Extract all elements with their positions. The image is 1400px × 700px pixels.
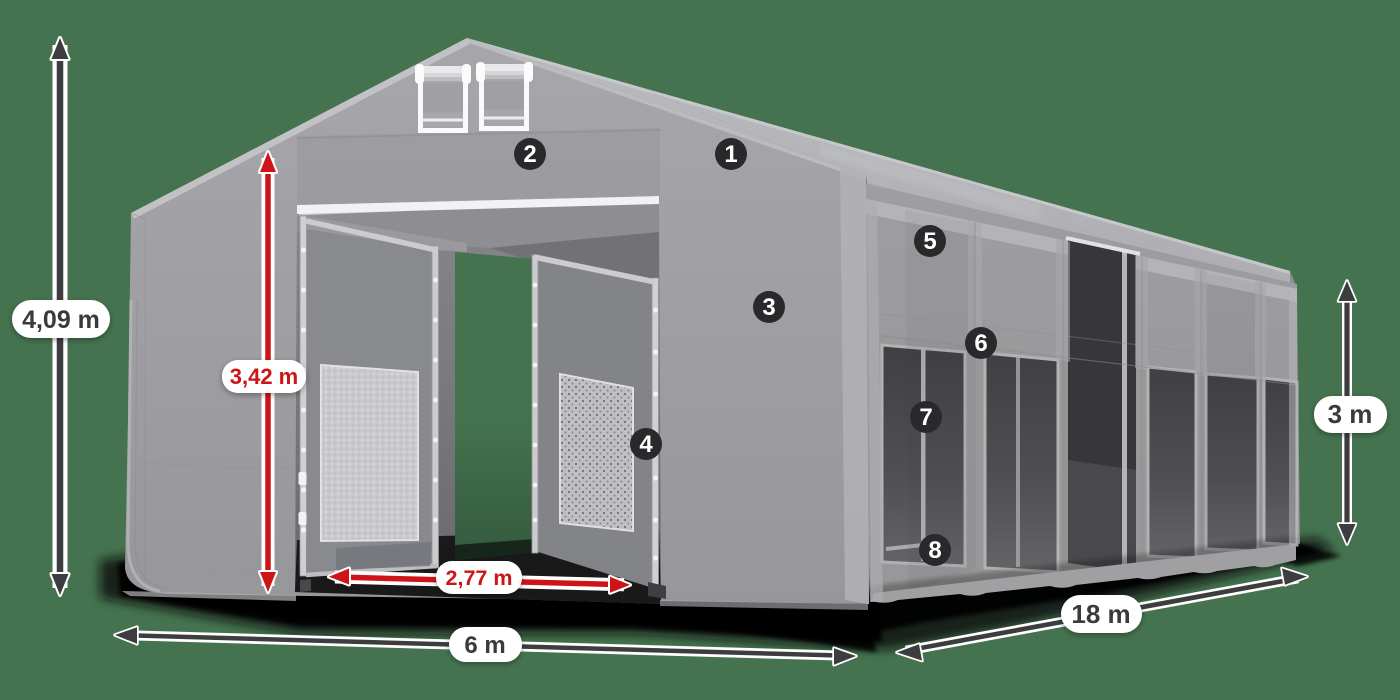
svg-text:4,09 m: 4,09 m [22, 306, 100, 334]
svg-text:2: 2 [523, 141, 536, 168]
svg-text:6: 6 [974, 330, 987, 357]
svg-text:3 m: 3 m [1328, 399, 1373, 429]
svg-text:8: 8 [928, 537, 941, 564]
svg-text:5: 5 [923, 228, 936, 255]
svg-text:18 m: 18 m [1071, 599, 1130, 629]
svg-text:7: 7 [919, 404, 932, 431]
svg-text:4: 4 [639, 431, 653, 458]
svg-text:3,42 m: 3,42 m [230, 364, 299, 389]
svg-text:2,77 m: 2,77 m [446, 566, 513, 590]
svg-text:6 m: 6 m [464, 632, 505, 659]
svg-text:3: 3 [762, 294, 775, 321]
svg-text:1: 1 [724, 141, 737, 168]
